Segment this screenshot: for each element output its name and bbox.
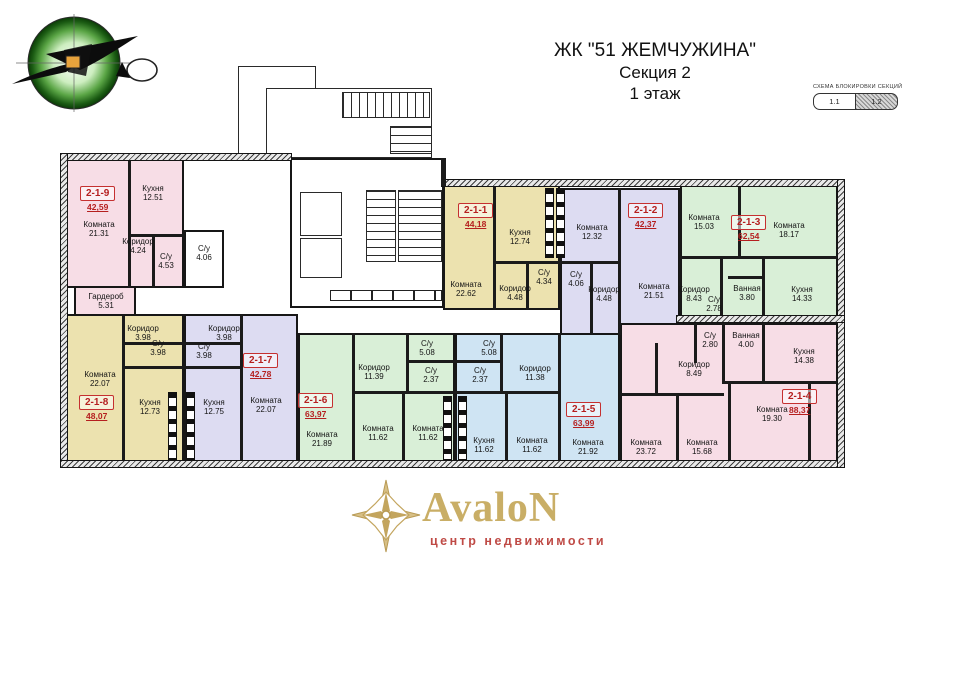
room-label: С/у 2.80: [702, 331, 718, 350]
room-label: Коридор 3.98: [208, 324, 240, 343]
title-block: ЖК "51 ЖЕМЧУЖИНА" Секция 2 1 этаж: [500, 40, 810, 104]
room-label: Комната 21.31: [83, 220, 114, 239]
apartment-unit-label-2-1-5[interactable]: 2-1-5 63,99: [566, 399, 601, 428]
entrance-steps: [390, 126, 432, 154]
unit-total-area: 62,54: [731, 231, 766, 241]
unit-total-area: 42,78: [243, 369, 278, 379]
section-blocking-schema: СХЕМА БЛОКИРОВКИ СЕКЦИЙ 1.1 1.2: [813, 84, 923, 110]
room-label: С/у 3.98: [150, 339, 166, 358]
room-area: 12.75: [203, 407, 224, 416]
apartment-unit-label-2-1-9[interactable]: 2-1-9 42,59: [80, 183, 115, 212]
room-area: 3.98: [196, 351, 212, 360]
unit-total-area: 42,59: [80, 202, 115, 212]
room-label: Комната 15.68: [686, 438, 717, 457]
room-label: Коридор 4.24: [122, 237, 154, 256]
wall: [676, 393, 679, 464]
schema-block-1-2: 1.2: [856, 93, 898, 110]
party-wall: [676, 315, 845, 323]
room-area: 21.31: [83, 229, 114, 238]
room-name: Ванная: [733, 284, 760, 293]
room-label: Коридор 4.48: [499, 284, 531, 303]
room-label: Комната 21.92: [572, 438, 603, 457]
wall: [558, 333, 561, 464]
room-area: 21.51: [638, 291, 669, 300]
room-name: Комната: [362, 424, 393, 433]
wall: [620, 393, 724, 396]
room-area: 2.78: [706, 304, 722, 313]
room-label: Коридор 11.38: [519, 364, 551, 383]
unit-id[interactable]: 2-1-8: [79, 395, 114, 410]
room-area: 3.98: [208, 333, 240, 342]
room-area: 11.62: [473, 445, 494, 454]
room-label: Гардероб 5.31: [88, 292, 123, 311]
room-label: Комната 22.07: [84, 370, 115, 389]
room-label: Коридор 8.43: [678, 285, 710, 304]
room-area: 14.38: [793, 356, 814, 365]
room-area: 21.89: [306, 439, 337, 448]
unit-id[interactable]: 2-1-1: [458, 203, 493, 218]
complex-title: ЖК "51 ЖЕМЧУЖИНА": [500, 40, 810, 62]
room-area: 4.53: [158, 261, 174, 270]
apartment-unit-label-2-1-4[interactable]: 2-1-4 88,37: [782, 386, 817, 415]
room-area: 23.72: [630, 447, 661, 456]
room-name: С/у: [702, 331, 718, 340]
room-name: Гардероб: [88, 292, 123, 301]
mailboxes: [330, 290, 442, 301]
wall: [352, 333, 355, 464]
kitchen-appliances: [556, 188, 565, 258]
wall: [655, 343, 658, 396]
room-label: С/у 5.08: [419, 339, 435, 358]
room-name: Комната: [83, 220, 114, 229]
wall: [240, 314, 243, 464]
agency-name: AvaloN: [422, 484, 560, 532]
room-area: 4.06: [568, 279, 584, 288]
room-area: 12.74: [509, 237, 530, 246]
room-name: Кухня: [203, 398, 224, 407]
room-name: Комната: [638, 282, 669, 291]
stair-flight-2: [398, 190, 442, 262]
room-name: С/у: [568, 270, 584, 279]
room-area: 19.30: [756, 414, 787, 423]
wall: [402, 391, 405, 464]
unit-total-area: 63,97: [298, 409, 333, 419]
exterior-wall: [60, 153, 292, 161]
compass-star-icon: [350, 478, 422, 556]
room-name: Кухня: [142, 184, 163, 193]
room-label: С/у 2.37: [423, 366, 439, 385]
floor-title: 1 этаж: [500, 83, 810, 104]
room-name: Коридор: [678, 285, 710, 294]
unit-id[interactable]: 2-1-9: [80, 186, 115, 201]
room-label: Комната 12.32: [576, 223, 607, 242]
room-name: Коридор: [208, 324, 240, 333]
room-name: Комната: [450, 280, 481, 289]
stair-flight-1: [366, 190, 396, 262]
room-name: Кухня: [509, 228, 530, 237]
room-name: С/у: [423, 366, 439, 375]
room-area: 4.34: [536, 277, 552, 286]
room-name: Кухня: [793, 347, 814, 356]
agency-emblem-icon: [6, 6, 166, 121]
room-label: Кухня 12.74: [509, 228, 530, 247]
room-label: Ванная 4.00: [732, 331, 759, 350]
wall: [694, 323, 697, 363]
room-area: 18.17: [773, 230, 804, 239]
room-area: 4.06: [196, 253, 212, 262]
unit-id[interactable]: 2-1-5: [566, 402, 601, 417]
kitchen-appliances: [443, 396, 452, 460]
room-area: 12.73: [139, 407, 160, 416]
entrance-stairs: [342, 92, 430, 118]
unit-id[interactable]: 2-1-3: [731, 215, 766, 230]
wall: [441, 158, 446, 186]
room-name: С/у: [419, 339, 435, 348]
kitchen-appliances: [458, 396, 467, 460]
room-area: 8.49: [678, 369, 710, 378]
room-name: С/у: [158, 252, 174, 261]
room-name: Комната: [688, 213, 719, 222]
apartment-unit-label-2-1-1[interactable]: 2-1-1 44,18: [458, 200, 493, 229]
wall: [762, 256, 765, 320]
room-label: Комната 11.62: [516, 436, 547, 455]
room-area: 5.08: [419, 348, 435, 357]
floor-plan-page: ЖК "51 ЖЕМЧУЖИНА" Секция 2 1 этаж СХЕМА …: [0, 0, 954, 687]
schema-title: СХЕМА БЛОКИРОВКИ СЕКЦИЙ: [813, 84, 923, 90]
room-name: Комната: [516, 436, 547, 445]
room-label: Кухня 12.51: [142, 184, 163, 203]
room-label: Комната 18.17: [773, 221, 804, 240]
room-area: 12.32: [576, 232, 607, 241]
room-name: Коридор: [358, 363, 390, 372]
room-label: Ванная 3.80: [733, 284, 760, 303]
room-name: Комната: [306, 430, 337, 439]
room-area: 2.37: [472, 375, 488, 384]
room-name: Комната: [84, 370, 115, 379]
unit-total-area: 48,07: [79, 411, 114, 421]
room-area: 4.00: [732, 340, 759, 349]
room-area: 4.24: [122, 246, 154, 255]
room-area: 2.37: [423, 375, 439, 384]
room-label: Комната 21.89: [306, 430, 337, 449]
room-area: 2.80: [702, 340, 718, 349]
room-area: 3.80: [733, 293, 760, 302]
unit-id[interactable]: 2-1-6: [298, 393, 333, 408]
room-label: С/у 4.06: [568, 270, 584, 289]
room-label: Кухня 14.38: [793, 347, 814, 366]
room-area: 3.98: [150, 348, 166, 357]
room-name: Комната: [412, 424, 443, 433]
wall: [128, 158, 131, 288]
wall: [722, 323, 725, 383]
wall: [122, 316, 125, 464]
room-label: Коридор 11.39: [358, 363, 390, 382]
apartment-unit-label-2-1-8[interactable]: 2-1-8 48,07: [79, 392, 114, 421]
room-area: 15.03: [688, 222, 719, 231]
room-label: Комната 11.62: [412, 424, 443, 443]
apartment-unit-label-2-1-3[interactable]: 2-1-3 62,54: [731, 212, 766, 241]
room-label: Комната 21.51: [638, 282, 669, 301]
wall: [493, 183, 496, 310]
room-name: С/у: [481, 339, 497, 348]
exterior-wall: [837, 179, 845, 468]
room-area: 11.39: [358, 372, 390, 381]
room-name: Комната: [686, 438, 717, 447]
room-name: С/у: [536, 268, 552, 277]
room-name: Комната: [250, 396, 281, 405]
room-label: Коридор 8.49: [678, 360, 710, 379]
room-label: Комната 11.62: [362, 424, 393, 443]
room-label: Коридор 4.48: [588, 285, 620, 304]
room-name: Коридор: [122, 237, 154, 246]
apartment-unit-label-2-1-2[interactable]: 2-1-2 42,37: [628, 200, 663, 229]
schema-block-1-1: 1.1: [813, 93, 856, 110]
room-name: С/у: [196, 342, 212, 351]
unit-total-area: 63,99: [566, 418, 601, 428]
room-name: Комната: [576, 223, 607, 232]
room-name: Коридор: [519, 364, 551, 373]
room-label: С/у 2.37: [472, 366, 488, 385]
room-name: С/у: [150, 339, 166, 348]
room-label: Кухня 14.33: [791, 285, 812, 304]
wall: [728, 276, 762, 279]
unit-total-area: 88,37: [782, 405, 817, 415]
room-name: Кухня: [791, 285, 812, 294]
room-area: 22.07: [250, 405, 281, 414]
wall: [184, 366, 240, 369]
kitchen-appliances: [545, 188, 554, 258]
exterior-wall: [441, 179, 845, 187]
room-area: 22.62: [450, 289, 481, 298]
room-name: Комната: [630, 438, 661, 447]
unit-total-area: 42,37: [628, 219, 663, 229]
room-name: Коридор: [678, 360, 710, 369]
room-area: 11.62: [516, 445, 547, 454]
room-area: 21.92: [572, 447, 603, 456]
kitchen-appliances: [168, 392, 177, 460]
room-name: Комната: [773, 221, 804, 230]
room-label: Кухня 11.62: [473, 436, 494, 455]
elevator-shaft-1: [300, 192, 342, 236]
room-name: Кухня: [473, 436, 494, 445]
wall: [122, 366, 184, 369]
unit-id[interactable]: 2-1-7: [243, 353, 278, 368]
room-label: Комната 22.62: [450, 280, 481, 299]
room-area: 5.31: [88, 301, 123, 310]
room-label: С/у 3.98: [196, 342, 212, 361]
room-label: С/у 5.08: [481, 339, 497, 358]
room-area: 4.48: [499, 293, 531, 302]
room-area: 8.43: [678, 294, 710, 303]
room-label: Кухня 12.75: [203, 398, 224, 417]
wall: [455, 360, 503, 363]
agency-subtitle: центр недвижимости: [430, 534, 606, 548]
room-area: 11.38: [519, 373, 551, 382]
unit-total-area: 44,18: [458, 219, 493, 229]
room-area: 11.62: [362, 433, 393, 442]
room-name: С/у: [472, 366, 488, 375]
wall: [722, 381, 838, 384]
room-name: Комната: [572, 438, 603, 447]
room-label: С/у 4.06: [196, 244, 212, 263]
room-name: Коридор: [127, 324, 159, 333]
wall: [728, 381, 731, 464]
room-area: 22.07: [84, 379, 115, 388]
wall: [762, 323, 765, 383]
room-area: 14.33: [791, 294, 812, 303]
section-title: Секция 2: [500, 62, 810, 83]
room-name: Кухня: [139, 398, 160, 407]
elevator-shaft-2: [300, 238, 342, 278]
room-name: Ванная: [732, 331, 759, 340]
room-label: Комната 15.03: [688, 213, 719, 232]
wall: [406, 360, 455, 363]
room-label: Комната 23.72: [630, 438, 661, 457]
exterior-wall: [60, 153, 68, 468]
room-label: С/у 4.34: [536, 268, 552, 287]
room-label: Комната 22.07: [250, 396, 281, 415]
room-area: 4.48: [588, 294, 620, 303]
room-area: 5.08: [481, 348, 497, 357]
room-area: 15.68: [686, 447, 717, 456]
apartment-2-1-8-region[interactable]: [66, 314, 184, 464]
exterior-wall: [60, 460, 843, 468]
room-name: С/у: [706, 295, 722, 304]
room-label: Кухня 12.73: [139, 398, 160, 417]
room-name: Коридор: [588, 285, 620, 294]
room-label: С/у 2.78: [706, 295, 722, 314]
room-area: 11.62: [412, 433, 443, 442]
apartment-unit-label-2-1-6[interactable]: 2-1-6 63,97: [298, 390, 333, 419]
unit-id[interactable]: 2-1-2: [628, 203, 663, 218]
unit-id[interactable]: 2-1-4: [782, 389, 817, 404]
room-area: 12.51: [142, 193, 163, 202]
wall: [505, 391, 508, 464]
room-name: Коридор: [499, 284, 531, 293]
room-name: С/у: [196, 244, 212, 253]
room-label: С/у 4.53: [158, 252, 174, 271]
apartment-unit-label-2-1-7[interactable]: 2-1-7 42,78: [243, 350, 278, 379]
kitchen-appliances: [186, 392, 195, 460]
wall: [680, 256, 838, 259]
